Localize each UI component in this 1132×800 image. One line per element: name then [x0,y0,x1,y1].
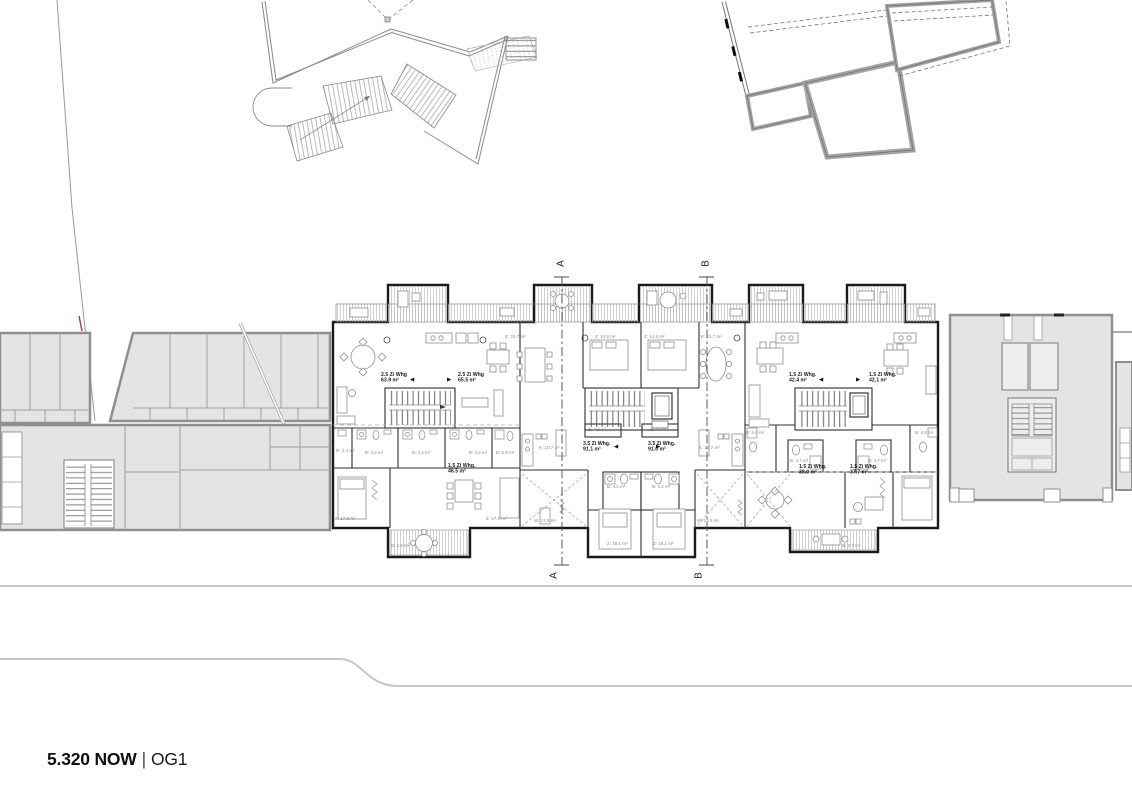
new-building [333,285,938,557]
architectural-floor-plan: 2.5 Zi Whg63.9 m²2.5 Zi Whg65.5 m²3.5 Zi… [0,0,1132,800]
drawing-title: 5.320 NOW|OG1 [47,749,187,770]
existing-building-left [0,323,330,530]
existing-building-right [950,315,1132,502]
street-lines [0,586,1132,686]
floor-level-label: OG1 [151,749,187,769]
upper-right-building [722,0,1010,157]
upper-building-stairs [253,0,537,164]
drawing-number: 5.320 NOW [47,749,137,769]
floor-plan-drawing [0,0,1132,800]
title-separator: | [142,749,146,769]
